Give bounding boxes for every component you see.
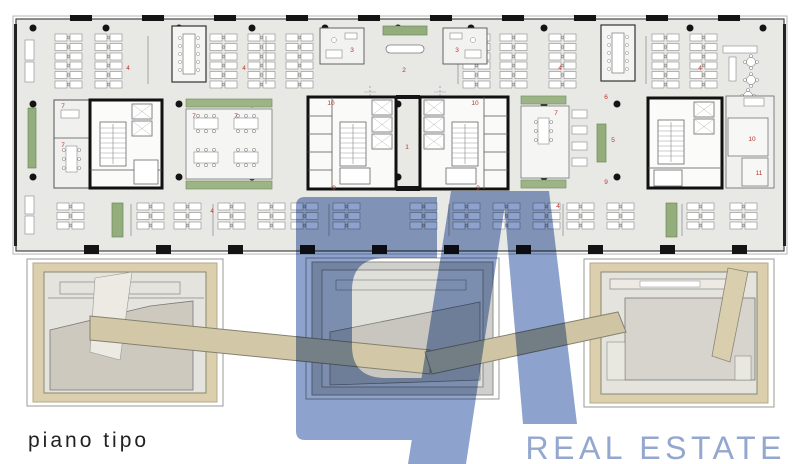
brochure-page: 1233444444567777799910101011 CA p: [0, 0, 800, 464]
ca-logo-watermark: CA: [0, 0, 800, 464]
logo-letter-a-right: [503, 191, 577, 424]
plan-caption: piano tipo: [28, 429, 149, 453]
logo-letter-c: [296, 197, 437, 440]
